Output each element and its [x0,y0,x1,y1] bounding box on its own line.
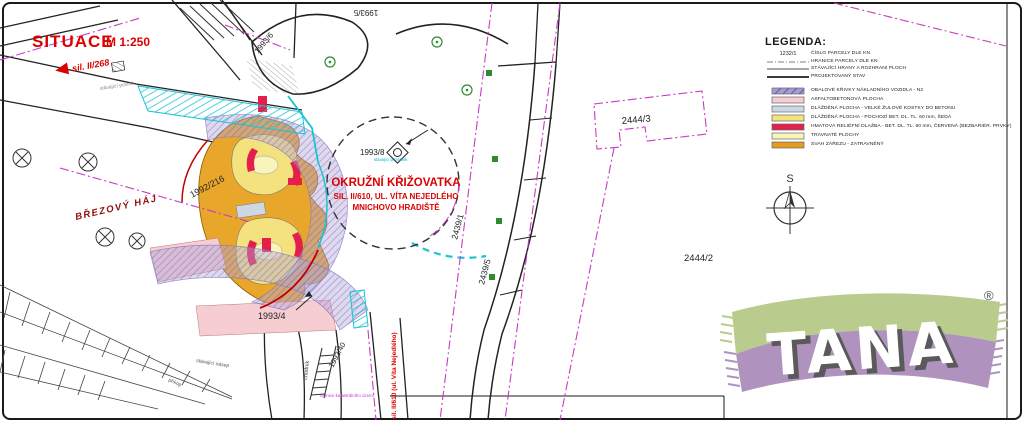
site-plan-sheet: S SITUACE M 1:250 sil. II/268 stávající … [0,0,1024,422]
legend-label: OBALOVÉ KŘIVKY NÁKLADNÍHO VOZIDLA - N2 [811,88,923,95]
legend-row: PROJEKTOVANÝ STAV [765,74,1007,81]
road-south-label: sil. II/610 (ul. Víta Nejedlého) [391,332,398,419]
legend-label: ASFALTOBETONOVÁ PLOCHA [811,97,883,104]
note-label: stávající pozemek [374,157,408,162]
legend-row: SVAH ZÁŘEZU - ZATRAVNĚNÝ [765,141,1007,149]
legend-row: ASFALTOBETONOVÁ PLOCHA [765,96,1007,104]
page-title: SITUACE [32,32,114,51]
legend-label: HMATOVÁ RELIÉFNÍ DLAŽBA - BET. DL. TL. 6… [811,124,1012,131]
roundabout-title: OKRUŽNÍ KŘIŽOVATKA [331,176,460,189]
legend-row: OBALOVÉ KŘIVKY NÁKLADNÍHO VOZIDLA - N2 [765,87,1007,95]
legend-row: DLÁŽDĚNÁ PLOCHA - VELKÉ ŽULOVÉ KOSTKY DO… [765,105,1007,113]
parcel-number-sample: 1232/1 [780,51,797,57]
area-swatch [771,123,805,131]
legend-row: TRAVNATÉ PLOCHY [765,132,1007,140]
parcel-label: 1993/8 [360,148,385,157]
area-swatch [771,132,805,140]
logo-text: TANA [765,308,959,389]
registered-mark-icon: ® [984,288,994,303]
roundabout-subtitle2: MNICHOVO HRADIŠTĚ [352,203,440,212]
legend-label: DLÁŽDĚNÁ PLOCHA - POCHOZÍ BET. DL. TL. 6… [811,115,951,122]
parcel-label: 1993/5 [353,8,378,17]
tana-flag-logo: TANA TANA ® [716,282,1010,402]
legend-row: HRANICE PARCELY DLE KN [765,59,1007,66]
legend-label: SVAH ZÁŘEZU - ZATRAVNĚNÝ [811,142,884,149]
symbol-mark [111,61,124,72]
dashdot-line-sample [767,59,809,65]
legend-label: TRAVNATÉ PLOCHY [811,133,859,140]
solid-line-sample [767,66,809,72]
solid-line-sample [767,74,809,80]
legend-row: STÁVAJÍCÍ HRANY A ROZHRANÍ PLOCH [765,66,1007,73]
page-scale: M 1:250 [106,35,150,49]
legend: LEGENDA: 1232/1 ČÍSLO PARCELY DLE KN HRA… [765,36,1007,150]
compass-north-label: S [786,173,793,185]
area-swatch [771,114,805,122]
legend-row: DLÁŽDĚNÁ PLOCHA - POCHOZÍ BET. DL. TL. 6… [765,114,1007,122]
area-swatch [771,87,805,95]
legend-label: DLÁŽDĚNÁ PLOCHA - VELKÉ ŽULOVÉ KOSTKY DO… [811,106,955,113]
legend-label: HRANICE PARCELY DLE KN [811,59,878,66]
parcel-label: 1993/4 [258,311,286,321]
parcel-label: 2444/2 [684,253,713,264]
legend-label: ČÍSLO PARCELY DLE KN [811,51,870,58]
legend-row: 1232/1 ČÍSLO PARCELY DLE KN [765,51,1007,58]
legend-label: PROJEKTOVANÝ STAV [811,74,865,81]
area-swatch [771,141,805,149]
cadastral-boundary-label: hranice katastrálního území [320,393,375,398]
legend-title: LEGENDA: [765,36,1007,48]
legend-label: STÁVAJÍCÍ HRANY A ROZHRANÍ PLOCH [811,66,906,73]
legend-row: HMATOVÁ RELIÉFNÍ DLAŽBA - BET. DL. TL. 6… [765,123,1007,131]
company-logo: TANA TANA ® [716,282,1010,402]
area-swatch [771,105,805,113]
area-swatch [771,96,805,104]
roundabout-subtitle1: SIL. II/610, UL. VÍTA NEJEDLÉHO [334,192,459,201]
